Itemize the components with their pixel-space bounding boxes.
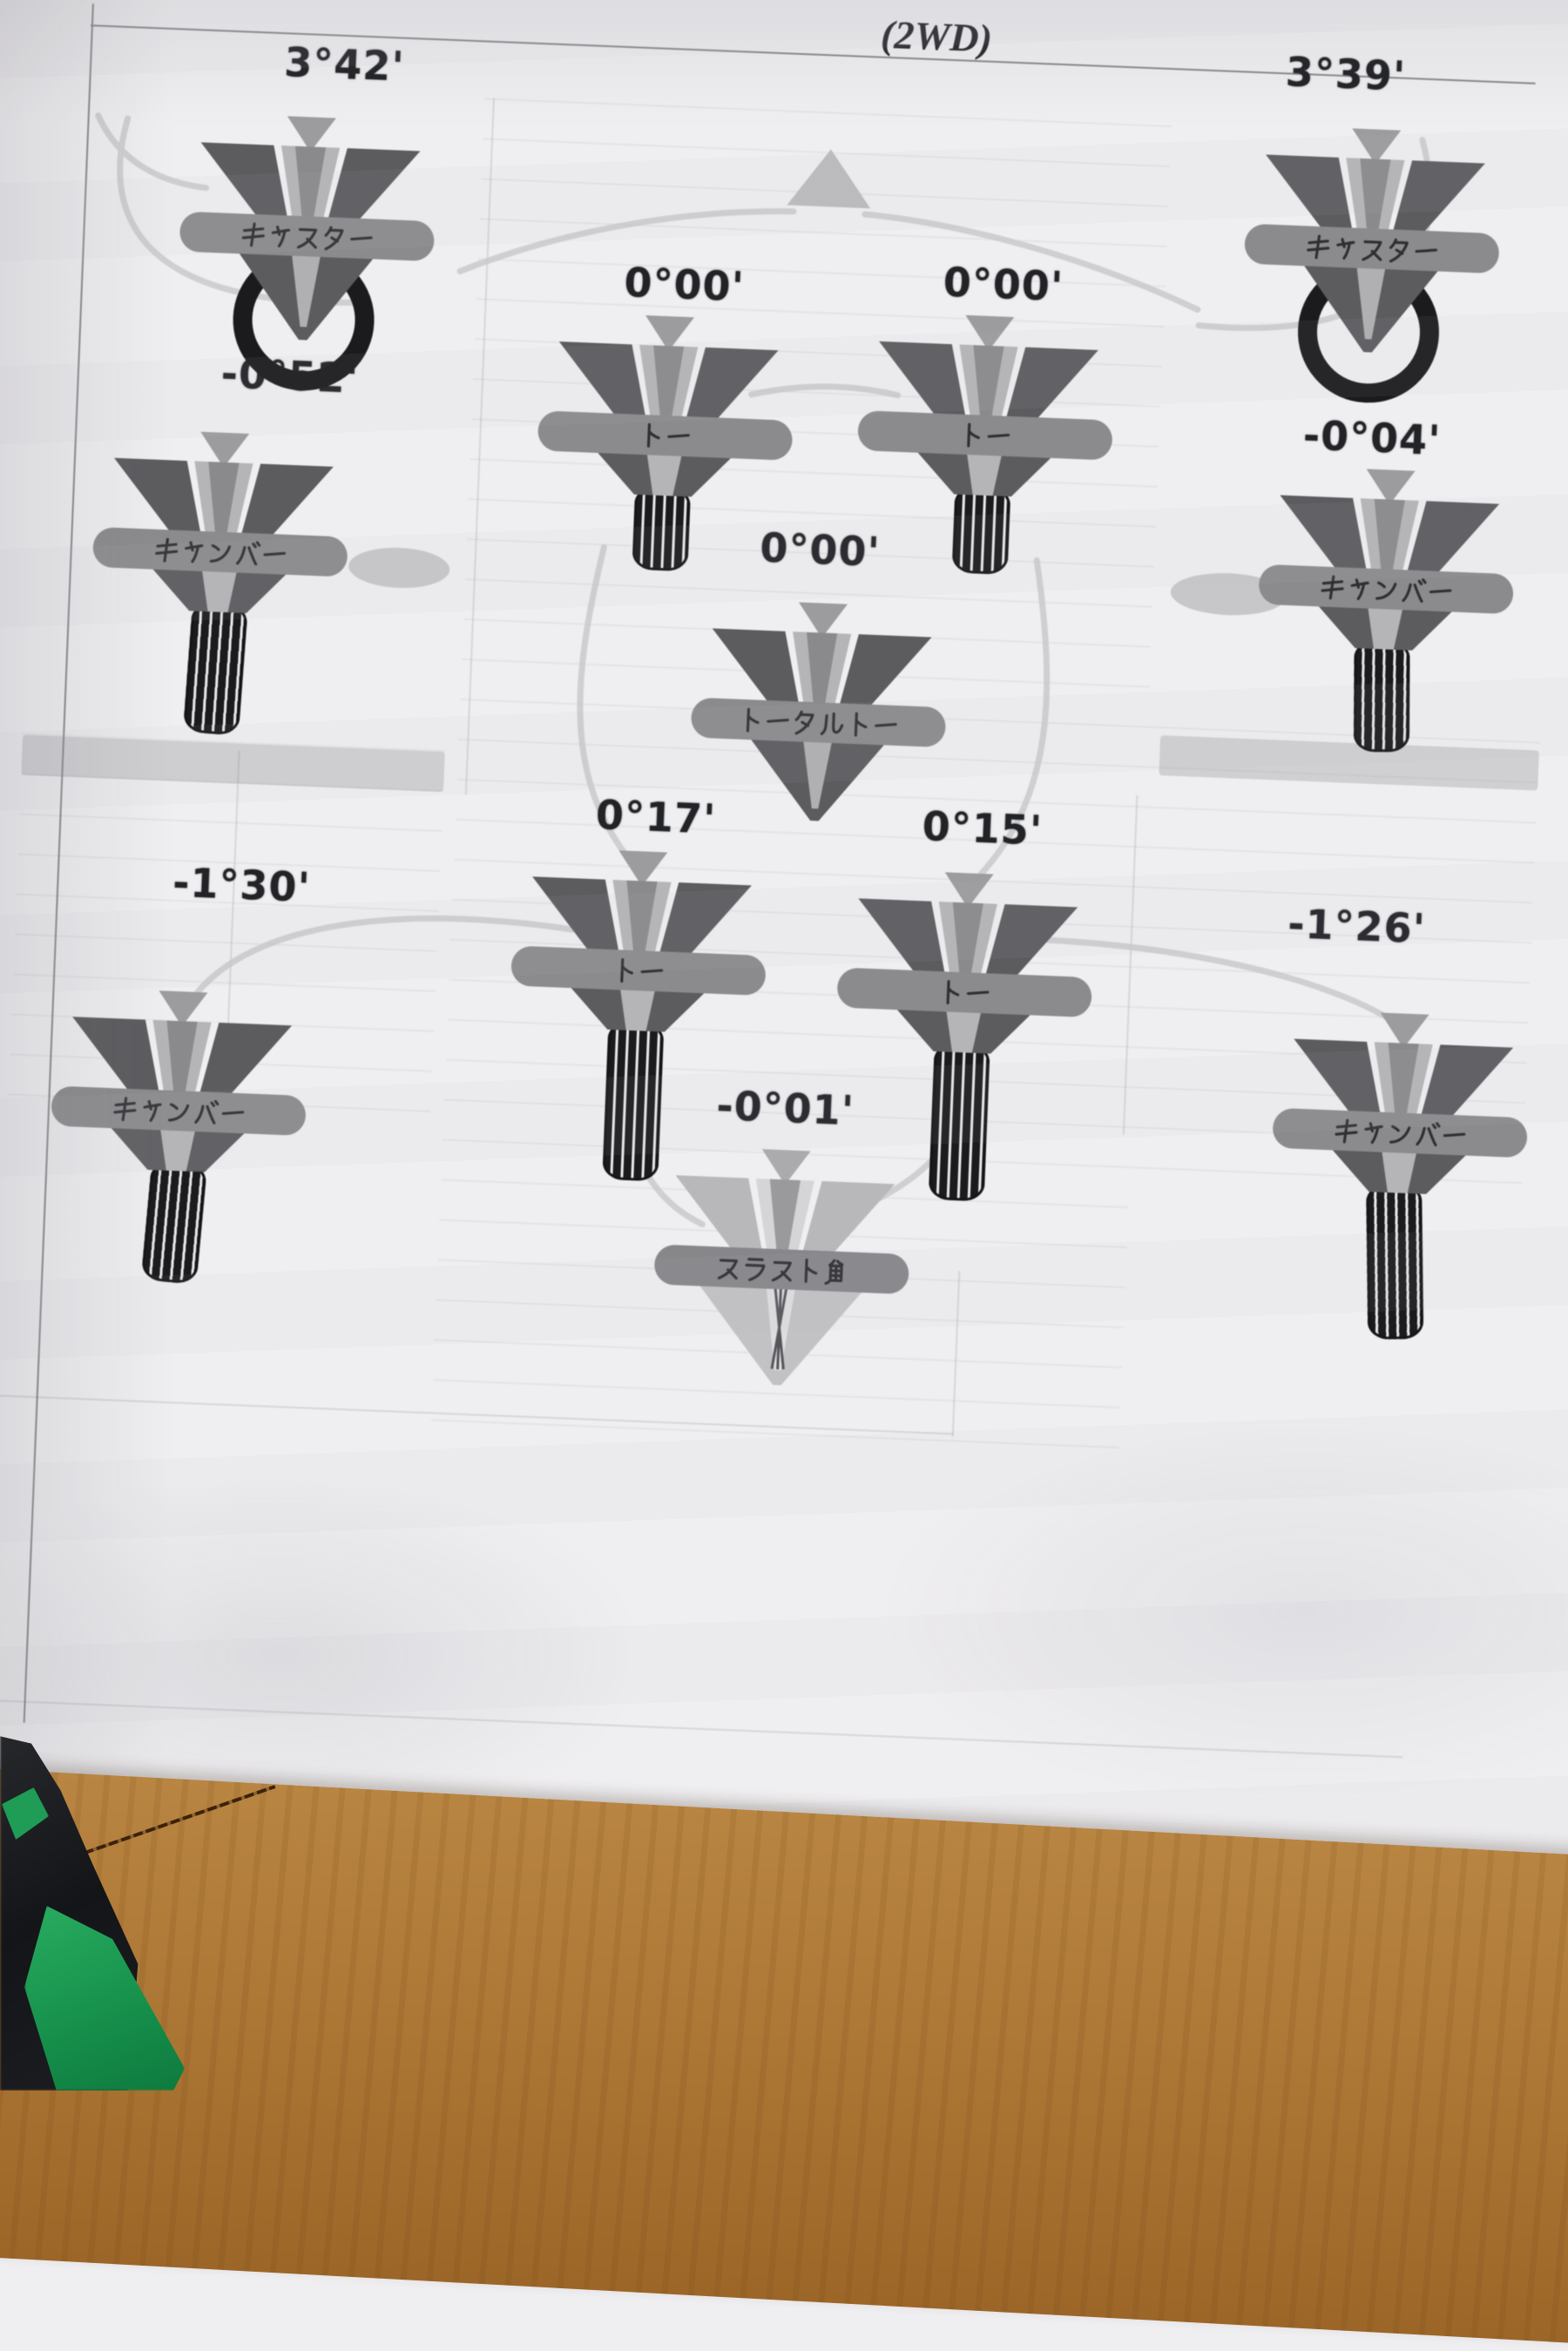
gauge-thrust-angle (650, 1145, 914, 1390)
gauge-needle-tip (712, 732, 921, 825)
gauge-total-toe (687, 598, 950, 827)
value-front-right-toe: 0°00' (943, 259, 1064, 310)
gauge-label (611, 956, 666, 985)
gauge-label (737, 706, 900, 739)
gauge-front-right-camber (1253, 465, 1518, 757)
gauge-rear-right-camber (1265, 1009, 1532, 1344)
value-rear-right-camber: -1°26' (1287, 900, 1426, 952)
photo-of-alignment-report: { "document": { "header_fragment": "(2WD… (0, 0, 1568, 2091)
gauge-front-right-caster (1239, 125, 1504, 408)
value-front-left-toe: 0°00' (623, 259, 745, 310)
gauge-needle-tip (200, 246, 409, 344)
tire-tread-icon (602, 1021, 664, 1181)
gauge-front-left-caster (173, 112, 438, 395)
gauge-label (937, 978, 992, 1007)
gauge-label (957, 421, 1012, 449)
gauge-label (1332, 1117, 1468, 1149)
tire-tread-icon (1354, 640, 1410, 752)
tire-tread-icon (951, 485, 1010, 574)
wood-table-surface (0, 1767, 1568, 2351)
gauge-label (152, 536, 288, 568)
value-front-right-camber: -0°04' (1302, 411, 1442, 463)
tire-tread-icon (1366, 1184, 1423, 1340)
tire-tread-icon (183, 601, 248, 735)
gauge-needle-tip (674, 1278, 884, 1388)
gauge-rear-left-camber (44, 987, 310, 1287)
tire-tread-icon (141, 1159, 207, 1284)
value-front-left-caster: 3°42' (283, 38, 405, 90)
gauge-label (239, 220, 375, 253)
value-front-right-caster: 3°39' (1285, 48, 1407, 99)
gauge-label (111, 1095, 247, 1127)
value-rear-left-camber: -1°30' (172, 859, 311, 911)
gauge-rear-left-toe (503, 847, 770, 1186)
gauge-label (638, 421, 693, 449)
gauge-front-right-toe (853, 311, 1118, 578)
tire-tread-icon (632, 486, 691, 571)
gauge-label (1304, 233, 1440, 265)
gauge-needle-tip (1265, 258, 1474, 356)
gauge-label (1318, 573, 1454, 605)
gauge-front-left-camber (86, 428, 353, 739)
tire-tread-icon (929, 1043, 990, 1201)
gauge-label (713, 1253, 849, 1286)
page-title-fragment: (2WD) (880, 11, 993, 62)
gauge-front-left-toe (532, 311, 796, 575)
